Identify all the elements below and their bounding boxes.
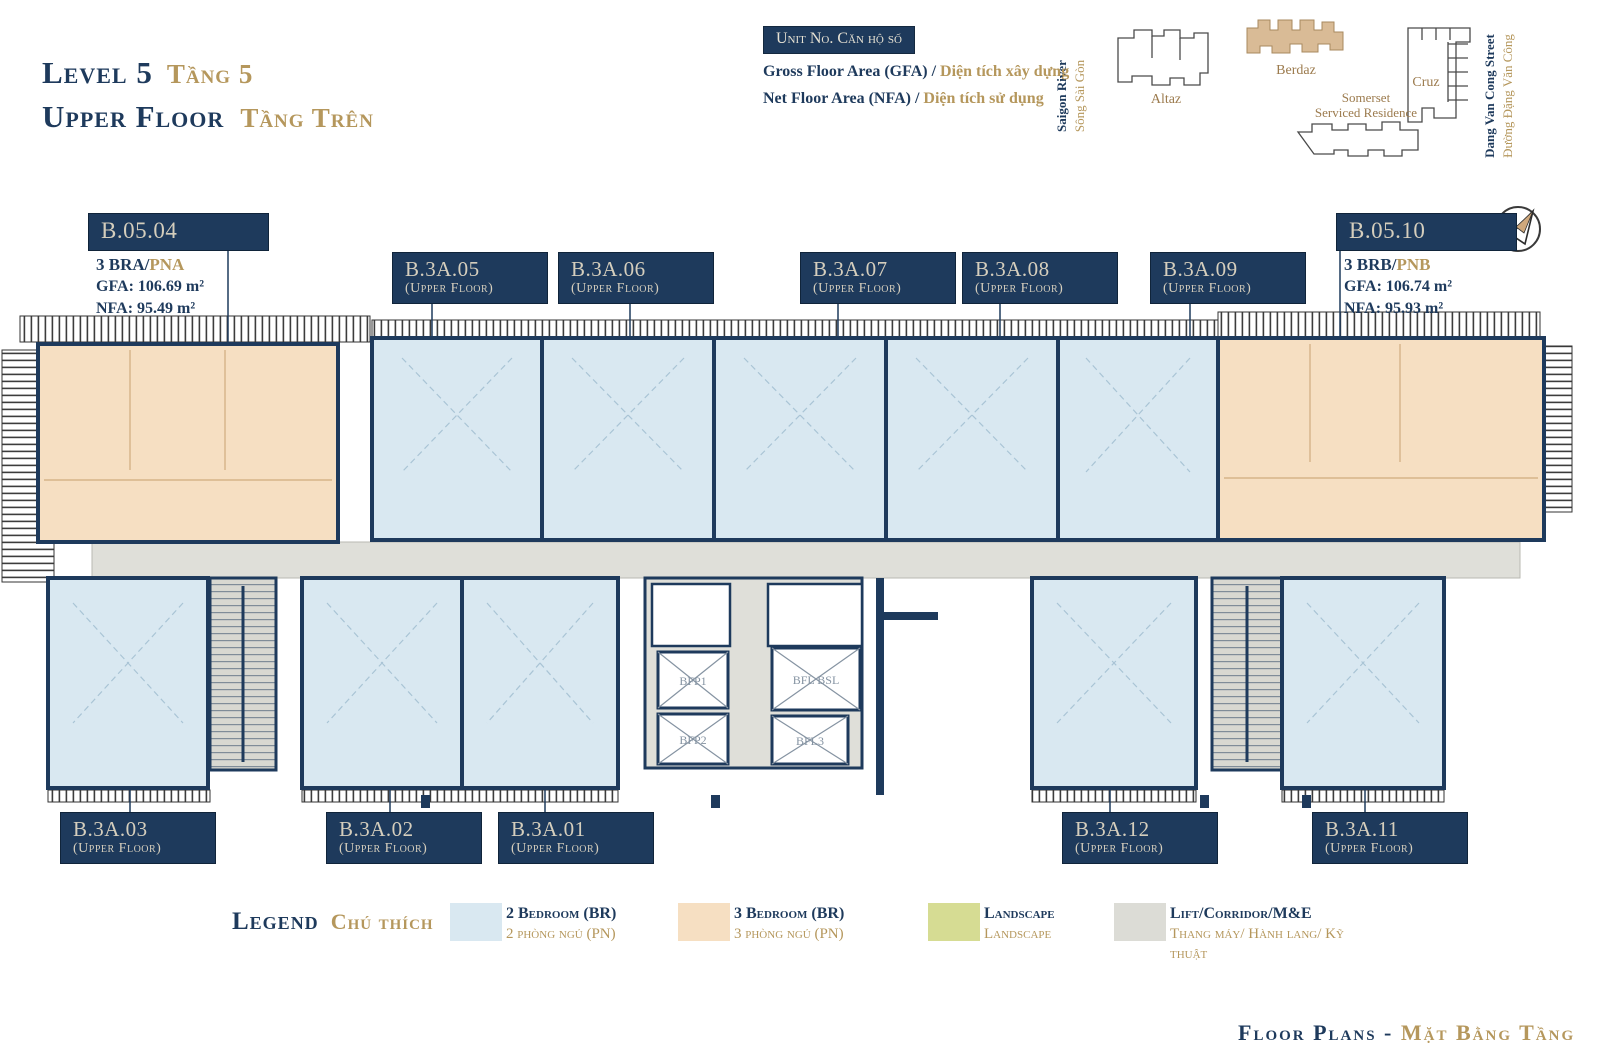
unit-nfa: NFA: 95.49 m²: [96, 298, 204, 320]
nfa-key-en: Net Floor Area (NFA) /: [763, 90, 919, 107]
lift-shaft-4: BFL3: [772, 716, 848, 764]
unit-type-en: 3 BRB/: [1344, 255, 1396, 274]
unit-tag-b3a06: B.3A.06 (Upper Floor): [558, 252, 714, 304]
unit-gfa: GFA: 106.74 m²: [1344, 276, 1452, 298]
floor-plan-page: BFP1 BFP2 BFL BSL BFL3: [0, 0, 1600, 1063]
legend-item-2br: 2 Bedroom (BR) 2 phòng ngủ (PN): [506, 904, 616, 944]
unit-tag-b0504: B.05.04: [88, 213, 269, 251]
unit-tag-b3a07: B.3A.07 (Upper Floor): [800, 252, 956, 304]
key-plan: Saigon River Sông Sài Gòn Altaz Berdaz C…: [1054, 20, 1515, 158]
lift-shaft-3: BFL BSL: [772, 648, 860, 710]
legend-landscape-en: Landscape: [984, 904, 1055, 924]
gfa-key-en: Gross Floor Area (GFA) /: [763, 63, 936, 80]
unit-floor: (Upper Floor): [73, 841, 203, 857]
unit-tag-b0510: B.05.10: [1336, 213, 1517, 251]
nfa-key-vi: Diện tích sử dụng: [923, 90, 1043, 107]
unit-id: B.3A.03: [73, 817, 203, 841]
level-label-vi: Tầng 5: [167, 59, 253, 89]
legend-item-landscape: Landscape Landscape: [984, 904, 1055, 944]
legend-title-en: Legend: [232, 908, 319, 935]
unit-tag-b3a09: B.3A.09 (Upper Floor): [1150, 252, 1306, 304]
unit-gfa: GFA: 106.69 m²: [96, 276, 204, 298]
unit-tag-b3a05: B.3A.05 (Upper Floor): [392, 252, 548, 304]
street-label-en: Dang Van Cong Street: [1482, 34, 1497, 158]
unit-floor: (Upper Floor): [975, 281, 1105, 297]
unit-id: B.3A.05: [405, 257, 535, 281]
unit-type-vi: PNB: [1396, 255, 1430, 274]
unit-2br-top-shapes: [372, 338, 1218, 540]
unit-floor: (Upper Floor): [1163, 281, 1293, 297]
unit-no-key-label: Unit No. Căn hộ số: [776, 30, 902, 47]
svg-text:BFP2: BFP2: [679, 733, 706, 747]
unit-tag-b3a11: B.3A.11 (Upper Floor): [1312, 812, 1468, 864]
legend-3br-vi: 3 phòng ngủ (PN): [734, 924, 844, 944]
street-label-vi: Đường Đặng Văn Công: [1500, 34, 1515, 158]
legend-swatch-lift: [1114, 903, 1166, 941]
unit-info-key: Unit No. Căn hộ số Gross Floor Area (GFA…: [763, 26, 1069, 108]
unit-floor: (Upper Floor): [511, 841, 641, 857]
page-title: Level 5Tầng 5 Upper FloorTầng Trên: [42, 55, 374, 135]
berdaz-label: Berdaz: [1276, 63, 1316, 78]
legend-landscape-vi: Landscape: [984, 924, 1055, 944]
unit-tag-b3a02: B.3A.02 (Upper Floor): [326, 812, 482, 864]
lift-shaft-2: BFP2: [658, 714, 728, 764]
somerset-label-2: Serviced Residence: [1315, 105, 1417, 120]
altaz-label: Altaz: [1151, 92, 1181, 107]
unit-nfa: NFA: 95.93 m²: [1344, 298, 1452, 320]
somerset-label-1: Somerset: [1342, 90, 1391, 105]
svg-text:BFL3: BFL3: [796, 734, 824, 748]
unit-id: B.3A.11: [1325, 817, 1455, 841]
legend-item-3br: 3 Bedroom (BR) 3 phòng ngủ (PN): [734, 904, 844, 944]
legend-item-lift: Lift/Corridor/M&E Thang máy/ Hành lang/ …: [1170, 904, 1350, 964]
unit-tag-b3a08: B.3A.08 (Upper Floor): [962, 252, 1118, 304]
legend-title-vi: Chú thích: [331, 909, 434, 934]
unit-no-key-box: Unit No. Căn hộ số: [763, 26, 915, 54]
legend-2br-vi: 2 phòng ngủ (PN): [506, 924, 616, 944]
unit-type-en: 3 BRA/: [96, 255, 149, 274]
level-label-en: Level 5: [42, 55, 153, 90]
unit-id: B.3A.08: [975, 257, 1105, 281]
svg-text:BFL BSL: BFL BSL: [793, 673, 840, 687]
legend-3br-en: 3 Bedroom (BR): [734, 904, 844, 924]
floor-label-vi: Tầng Trên: [240, 103, 374, 133]
unit-id: B.3A.07: [813, 257, 943, 281]
cruz-label: Cruz: [1412, 75, 1439, 90]
river-label-vi: Sông Sài Gòn: [1072, 59, 1087, 132]
unit-tag-b3a01: B.3A.01 (Upper Floor): [498, 812, 654, 864]
unit-id: B.3A.02: [339, 817, 469, 841]
lift-shaft-1: BFP1: [658, 652, 728, 708]
legend-swatch-2br: [450, 903, 502, 941]
unit-id: B.3A.12: [1075, 817, 1205, 841]
unit-floor: (Upper Floor): [405, 281, 535, 297]
title-line-1: Level 5Tầng 5: [42, 55, 374, 91]
title-line-2: Upper FloorTầng Trên: [42, 99, 374, 135]
unit-info-b0510: 3 BRB/PNB GFA: 106.74 m² NFA: 95.93 m²: [1344, 254, 1452, 320]
berdaz-shape: [1247, 20, 1343, 53]
unit-id: B.05.10: [1349, 218, 1504, 244]
unit-floor: (Upper Floor): [813, 281, 943, 297]
unit-info-b0504: 3 BRA/PNA GFA: 106.69 m² NFA: 95.49 m²: [96, 254, 204, 320]
unit-id: B.05.04: [101, 218, 256, 244]
footer-en: Floor Plans -: [1238, 1020, 1393, 1045]
unit-id: B.3A.01: [511, 817, 641, 841]
floor-label-en: Upper Floor: [42, 99, 224, 134]
legend-2br-en: 2 Bedroom (BR): [506, 904, 616, 924]
legend-lift-vi: Thang máy/ Hành lang/ Kỹ thuật: [1170, 924, 1350, 964]
legend-swatch-landscape: [928, 903, 980, 941]
unit-id: B.3A.06: [571, 257, 701, 281]
legend-lift-en: Lift/Corridor/M&E: [1170, 904, 1350, 924]
svg-text:BFP1: BFP1: [679, 674, 706, 688]
unit-floor: (Upper Floor): [339, 841, 469, 857]
gfa-key-line: Gross Floor Area (GFA) / Diện tích xây d…: [763, 63, 1069, 81]
altaz-outline: [1118, 30, 1208, 85]
unit-type-vi: PNA: [149, 255, 184, 274]
gfa-key-vi: Diện tích xây dựng: [940, 63, 1069, 80]
unit-tag-b3a12: B.3A.12 (Upper Floor): [1062, 812, 1218, 864]
unit-floor: (Upper Floor): [1075, 841, 1205, 857]
legend-swatch-3br: [678, 903, 730, 941]
nfa-key-line: Net Floor Area (NFA) / Diện tích sử dụng: [763, 90, 1069, 108]
footer-caption: Floor Plans - Mặt Bằng Tầng: [1238, 1020, 1575, 1046]
void-wall: [876, 578, 938, 795]
somerset-outline: [1298, 122, 1418, 156]
unit-id: B.3A.09: [1163, 257, 1293, 281]
footer-vi: Mặt Bằng Tầng: [1401, 1020, 1575, 1045]
unit-floor: (Upper Floor): [571, 281, 701, 297]
legend-title: LegendChú thích: [232, 908, 434, 936]
unit-floor: (Upper Floor): [1325, 841, 1455, 857]
unit-tag-b3a03: B.3A.03 (Upper Floor): [60, 812, 216, 864]
